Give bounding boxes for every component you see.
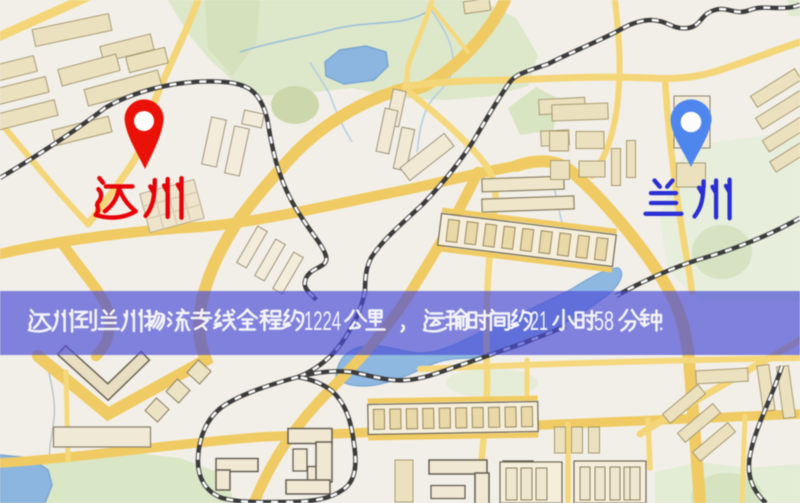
svg-text:21: 21 [530, 306, 548, 336]
svg-text:58: 58 [594, 306, 614, 336]
svg-text:.: . [658, 309, 664, 335]
svg-text:1224: 1224 [304, 306, 341, 336]
